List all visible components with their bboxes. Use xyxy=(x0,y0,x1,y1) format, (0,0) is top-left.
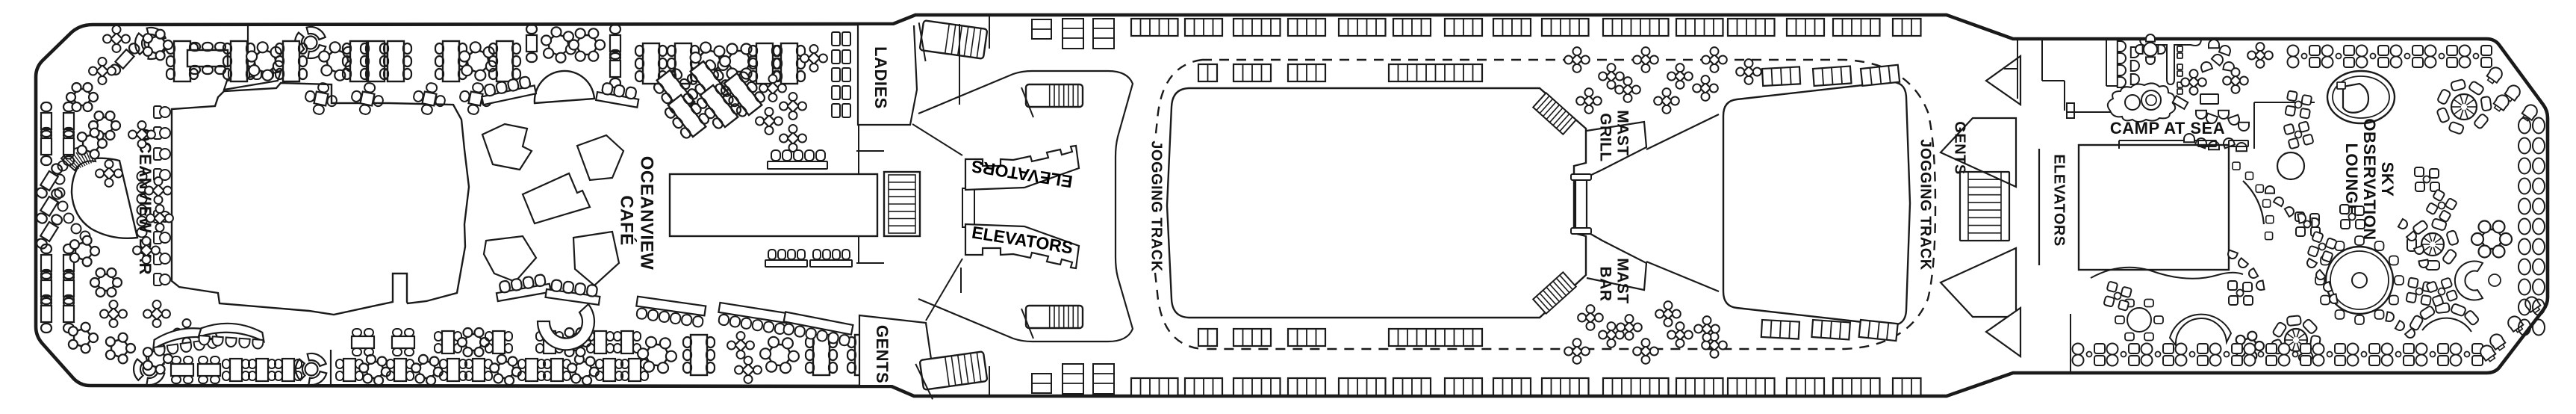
svg-text:JOGGING TRACK: JOGGING TRACK xyxy=(1917,139,1934,270)
svg-text:GENTS: GENTS xyxy=(1952,121,1968,174)
svg-text:SKY: SKY xyxy=(2378,162,2397,197)
svg-text:GRILL: GRILL xyxy=(1596,113,1614,162)
svg-text:BAR: BAR xyxy=(1596,267,1614,302)
svg-text:LADIES: LADIES xyxy=(871,46,890,109)
svg-text:CAFÉ: CAFÉ xyxy=(617,195,638,245)
svg-text:MAST: MAST xyxy=(1614,258,1631,304)
svg-text:GENTS: GENTS xyxy=(873,325,892,383)
svg-text:OCEANVIEW: OCEANVIEW xyxy=(637,156,657,271)
svg-text:JOGGING TRACK: JOGGING TRACK xyxy=(1148,140,1165,271)
svg-text:MAST: MAST xyxy=(1614,110,1631,156)
svg-text:ELEVATORS: ELEVATORS xyxy=(2051,154,2068,246)
